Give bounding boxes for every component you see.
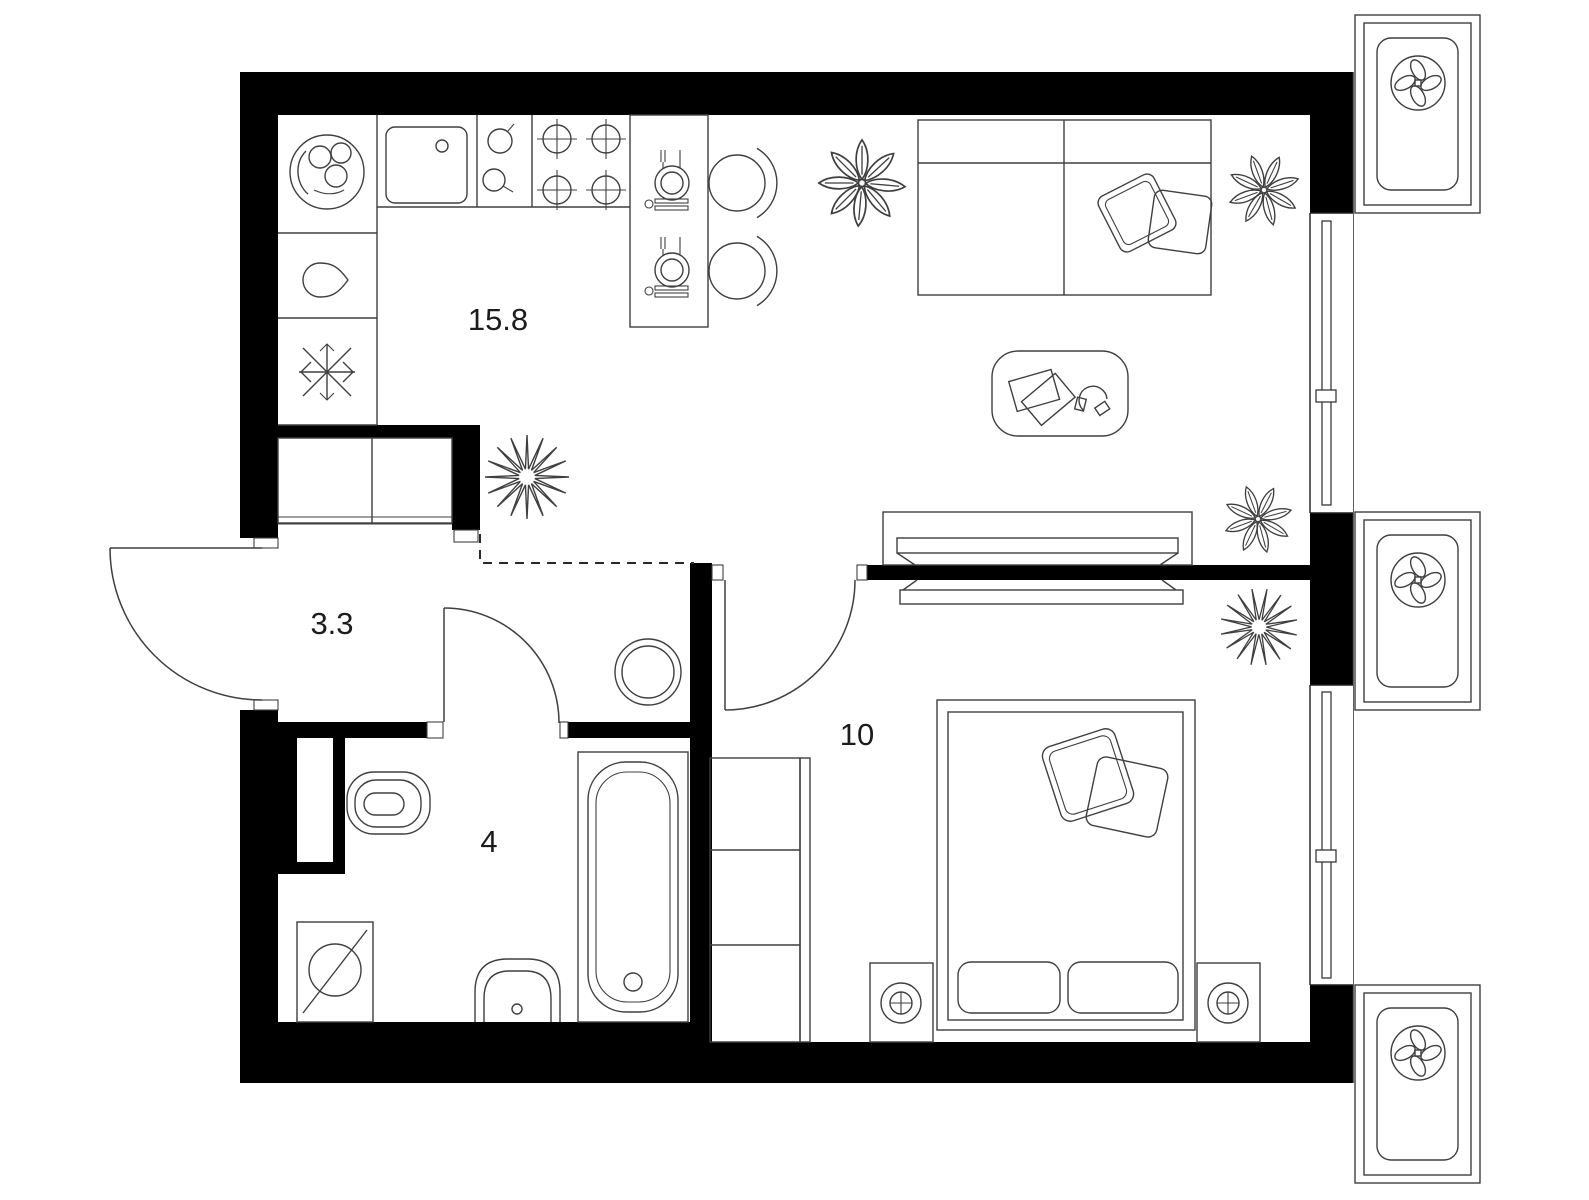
wall-top	[240, 72, 1353, 115]
bathtub-icon	[578, 752, 688, 1022]
wall-right-pier-top	[1310, 110, 1353, 213]
wall-left-upper	[240, 72, 278, 538]
vent-shaft-wall-left	[278, 722, 297, 874]
sofa	[918, 120, 1213, 295]
washing-machine-icon	[297, 922, 373, 1022]
dish-rack-icon	[290, 135, 364, 209]
walls	[240, 72, 1353, 1083]
window-living-room	[1310, 213, 1353, 513]
plant-leafy-icon	[819, 140, 906, 227]
blanket	[1068, 962, 1178, 1013]
hall-wardrobe	[278, 438, 452, 524]
plant-spiky-icon	[485, 435, 569, 519]
wall-hall-bedroom	[690, 563, 712, 1042]
chair	[709, 148, 777, 217]
sofa-pillow	[1095, 171, 1178, 254]
room-labels: 15.8 3.3 4 10	[310, 302, 874, 859]
floor-plan-page: 15.8 3.3 4 10	[0, 0, 1589, 1200]
label-bathroom: 4	[480, 824, 497, 859]
window-transom	[1316, 390, 1336, 402]
window-glazing	[1322, 692, 1331, 978]
vent-shaft-wall-right	[333, 738, 345, 868]
bedroom-jamb-right	[857, 565, 867, 580]
closet-jamb	[454, 530, 478, 542]
kettle-drop-icon	[303, 263, 348, 297]
wall-right-pier-bottom	[1310, 985, 1353, 1083]
zone-boundary-dashed	[480, 534, 694, 563]
ac-unit-top	[1355, 15, 1480, 213]
apartment-floor-plan: 15.8 3.3 4 10	[0, 0, 1589, 1200]
entrance-door-swing	[110, 548, 262, 700]
entrance-jamb-top	[254, 538, 278, 548]
coffee-table	[992, 351, 1128, 436]
hob-pots-icon	[483, 124, 514, 192]
books-icon	[1009, 370, 1075, 426]
closet-niche-wall-stub	[452, 438, 480, 530]
closet-niche-wall-top	[276, 425, 480, 438]
wall-living-bedroom	[867, 565, 1310, 580]
kitchen-sink-icon	[386, 127, 467, 203]
chair	[709, 236, 777, 305]
entrance-jamb-bottom	[254, 700, 278, 710]
chairs	[709, 148, 777, 305]
dining-table	[630, 115, 708, 327]
bed-pillow	[1085, 755, 1170, 838]
wall-right-pier-middle	[1310, 513, 1353, 685]
tv-console-living	[883, 512, 1192, 565]
vent-shaft-wall-bottom	[297, 862, 345, 874]
place-setting-icon	[645, 237, 689, 297]
bed	[937, 700, 1195, 1030]
tv-dresser-bedroom	[900, 580, 1183, 604]
bathroom-door-swing	[444, 608, 559, 723]
stove-burners-icon	[537, 119, 626, 210]
nightstand-lamp-icon	[870, 963, 933, 1042]
wall-bottom-bathroom	[240, 1022, 712, 1083]
ac-unit-middle	[1355, 512, 1480, 710]
bedroom-jamb-left	[712, 565, 723, 580]
bathroom-jamb-left	[427, 722, 443, 738]
label-kitchen-living: 15.8	[468, 302, 528, 337]
bedroom-wardrobe	[710, 758, 810, 1042]
place-setting-icon	[645, 150, 689, 210]
fridge-snowflake-icon	[299, 344, 355, 400]
nightstand-lamp-icon	[1197, 963, 1260, 1042]
toilet-icon	[347, 772, 430, 834]
wall-bathroom-top-right	[568, 722, 690, 738]
bathroom-jamb-right	[560, 722, 568, 738]
bathroom-sink-icon	[475, 959, 560, 1022]
round-pouf	[615, 639, 681, 705]
label-bedroom: 10	[840, 717, 874, 752]
window-glazing	[1322, 221, 1331, 505]
sofa-pillow	[1147, 189, 1213, 255]
plant-leafy-icon	[1216, 142, 1312, 238]
plant-spiky-icon	[1213, 581, 1305, 673]
label-hallway: 3.3	[310, 606, 353, 641]
ac-unit-bottom	[1355, 985, 1480, 1183]
window-bedroom	[1310, 685, 1353, 985]
blanket	[958, 962, 1060, 1013]
window-transom	[1316, 850, 1336, 862]
wall-bathroom-top-left	[278, 722, 433, 738]
bedroom-door-swing	[725, 580, 855, 710]
plant-leafy-icon	[1214, 475, 1302, 563]
wall-bottom-bedroom	[694, 1042, 1353, 1083]
headphones-icon	[1075, 386, 1110, 415]
